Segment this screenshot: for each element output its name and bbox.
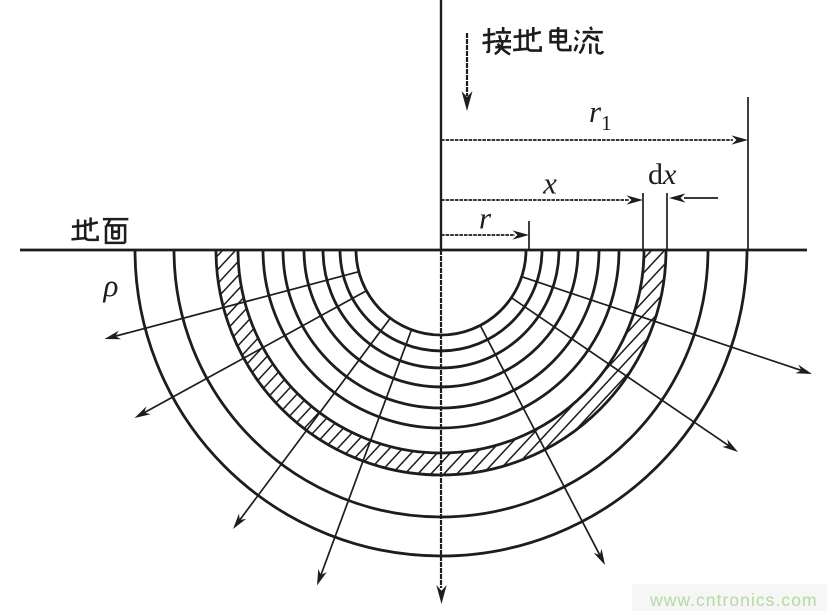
svg-text:r: r: [479, 201, 492, 236]
svg-text:www.cntronics.com: www.cntronics.com: [649, 590, 818, 610]
svg-text:ρ: ρ: [103, 268, 119, 303]
svg-text:dx: dx: [648, 158, 677, 191]
svg-text:x: x: [542, 166, 557, 201]
